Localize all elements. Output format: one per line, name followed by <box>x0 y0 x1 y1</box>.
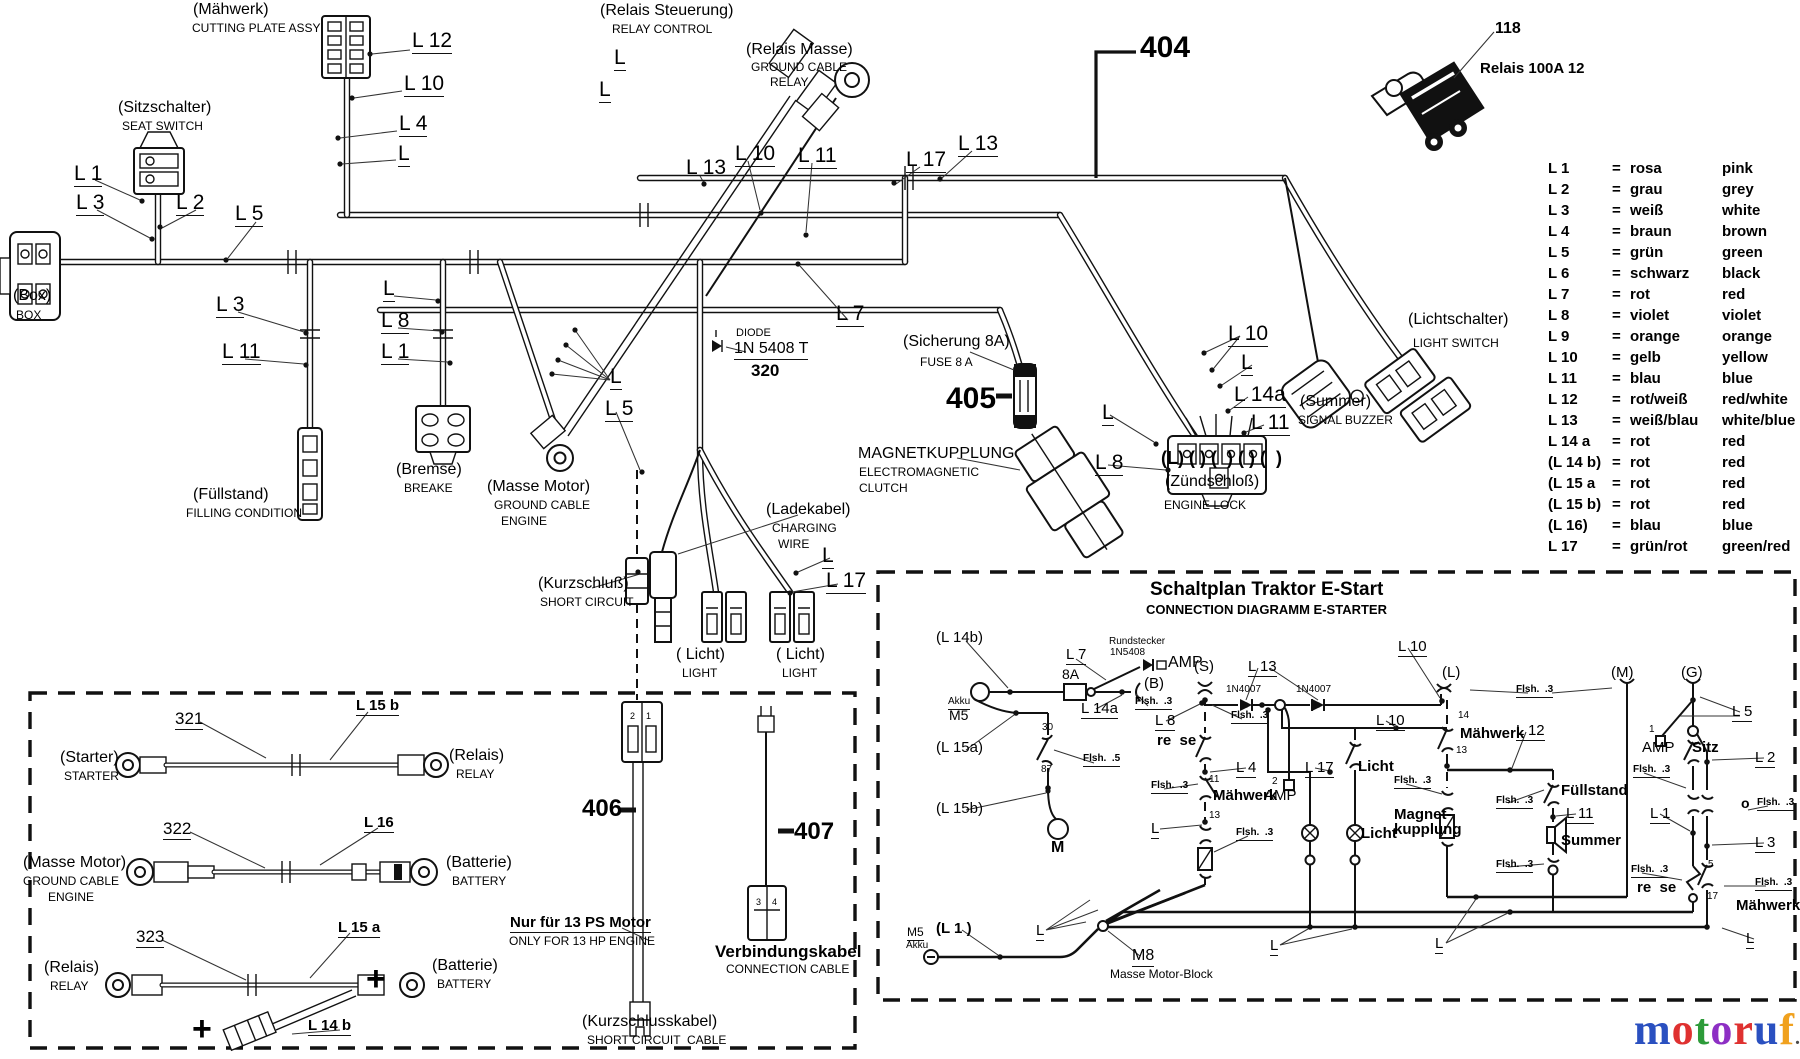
c-re-se-1: re se <box>1157 733 1196 749</box>
c-node-m: (M) <box>1611 665 1634 681</box>
pin-407-3: 3 <box>756 898 761 907</box>
maehwerk-label-en: CUTTING PLATE ASSY <box>192 22 320 35</box>
wire-l17: L 17 <box>906 149 946 173</box>
legend-code: (L 16) <box>1548 517 1612 534</box>
legend-row-8: L 8=violetviolet <box>1548 307 1795 328</box>
c-l-r2: L <box>1435 936 1443 954</box>
c-l2: L 2 <box>1755 750 1775 768</box>
c-1n5408: 1N5408 <box>1110 648 1145 659</box>
legend-de: weiß/blau <box>1630 412 1722 429</box>
legend-eq: = <box>1612 496 1630 513</box>
legend-row-9: L 9=orangeorange <box>1548 328 1795 349</box>
legend-de: rosa <box>1630 160 1722 177</box>
summer-label-en: SIGNAL BUZZER <box>1298 414 1393 427</box>
c-30: 30 <box>1042 723 1053 734</box>
harness-and-schematic-drawing <box>0 0 1800 1059</box>
wire-l-fan: L <box>610 366 622 390</box>
part-322: 322 <box>163 820 191 840</box>
legend-row-5: L 5=grüngreen <box>1548 244 1795 265</box>
legend-code: L 14 a <box>1548 433 1612 450</box>
legend-row-13: L 13=weiß/blauwhite/blue <box>1548 412 1795 433</box>
c-flsh-12: Flsh. .3 <box>1631 865 1668 878</box>
c-flsh-4: Flsh. .3 <box>1236 828 1273 841</box>
c-5: 5 <box>1708 860 1714 871</box>
c-m5-2: M5 <box>907 926 924 941</box>
legend-eq: = <box>1612 160 1630 177</box>
legend-code: L 3 <box>1548 202 1612 219</box>
legend-code: L 4 <box>1548 223 1612 240</box>
wire-l10-top: L 10 <box>404 73 444 97</box>
wire-l5-fan: L 5 <box>605 398 633 422</box>
pin-406-2: 2 <box>630 712 635 721</box>
c-b: (B) <box>1144 676 1164 692</box>
wire-l13-b: L 13 <box>958 133 998 157</box>
legend-en: red <box>1722 454 1795 471</box>
summer-label-de: (Summer) <box>1300 394 1371 411</box>
part-118-name: Relais 100A 12 <box>1480 61 1585 77</box>
plus-sign-1: + <box>192 1012 212 1048</box>
legend-code: (L 15 a <box>1548 475 1612 492</box>
legend-de: blau <box>1630 370 1722 387</box>
legend-row-15a: (L 15 a=rotred <box>1548 475 1795 496</box>
c-s: (S) <box>1194 659 1214 675</box>
legend-eq: = <box>1612 265 1630 282</box>
licht2-label-en: LIGHT <box>782 667 817 680</box>
c-13a: 13 <box>1209 811 1220 822</box>
legend-code: L 9 <box>1548 328 1612 345</box>
relais321-label-de: (Relais) <box>449 748 504 765</box>
c-licht-2: Licht <box>1361 826 1397 842</box>
c-flsh-1: Flsh. .3 <box>1135 697 1172 710</box>
legend-de: rot <box>1630 475 1722 492</box>
c-sitz: Sitz <box>1692 740 1719 756</box>
c-l15a: (L 15a) <box>936 740 983 756</box>
legend-code: L 6 <box>1548 265 1612 282</box>
c-l14b: (L 14b) <box>936 630 983 646</box>
wire-l4-top: L 4 <box>399 113 427 137</box>
legend-row-7: L 7=rotred <box>1548 286 1795 307</box>
legend-code: L 2 <box>1548 181 1612 198</box>
c-l12: L 12 <box>1516 723 1545 741</box>
legend-row-11: L 11=blaublue <box>1548 370 1795 391</box>
legend-en: red <box>1722 286 1795 303</box>
c-l3: L 3 <box>1755 835 1775 853</box>
c-motor-m: M <box>1051 840 1064 857</box>
c-licht-1: Licht <box>1358 759 1394 775</box>
c-l7: L 7 <box>1066 647 1086 665</box>
nur13ps-de: Nur für 13 PS Motor <box>510 915 651 933</box>
legend-code: L 5 <box>1548 244 1612 261</box>
c-l5: L 5 <box>1732 704 1752 722</box>
wire-l-zs: L <box>1241 352 1253 376</box>
c-13b: 13 <box>1456 746 1467 757</box>
relais-steuerung-label-en: RELAY CONTROL <box>612 23 712 36</box>
legend-code: L 7 <box>1548 286 1612 303</box>
masse-motor322-label-en1: GROUND CABLE <box>23 875 119 888</box>
masse-motor-label-de: (Masse Motor) <box>487 479 590 496</box>
legend-row-12: L 12=rot/weißred/white <box>1548 391 1795 412</box>
legend-de: schwarz <box>1630 265 1722 282</box>
legend-de: braun <box>1630 223 1722 240</box>
legend-en: brown <box>1722 223 1795 240</box>
sitzschalter-label-de: (Sitzschalter) <box>118 100 211 117</box>
wire-l8-zs: L 8 <box>1095 452 1123 476</box>
logo-letter: u <box>1754 1005 1779 1054</box>
c-flsh-6: Flsh. .3 <box>1516 685 1553 698</box>
ladekabel-label-de: (Ladekabel) <box>766 502 851 519</box>
fuse-8a-component <box>996 364 1036 428</box>
wire-l3-left: L 3 <box>76 192 104 216</box>
verbindungskabel-label-en: CONNECTION CABLE <box>726 963 849 976</box>
cable-321-starter <box>116 753 448 777</box>
logo-letter: r <box>1733 1005 1754 1054</box>
logo-letter: t <box>1695 1005 1711 1054</box>
part-404-bracket <box>1096 52 1136 178</box>
c-14: 14 <box>1458 711 1469 722</box>
legend-eq: = <box>1612 307 1630 324</box>
mower-deck-connector <box>322 16 370 78</box>
legend-en: white <box>1722 202 1795 219</box>
legend-code: L 1 <box>1548 160 1612 177</box>
legend-en: yellow <box>1722 349 1795 366</box>
motoruf-logo: motoruf.de <box>1634 1004 1800 1055</box>
licht1-label-en: LIGHT <box>682 667 717 680</box>
ladekabel-label-en2: WIRE <box>778 538 809 551</box>
nur13ps-en: ONLY FOR 13 HP ENGINE <box>509 935 655 948</box>
legend-row-17: L 17=grün/rotgreen/red <box>1548 538 1795 559</box>
batterie322-label-de: (Batterie) <box>446 855 512 872</box>
legend-eq: = <box>1612 433 1630 450</box>
legend-eq: = <box>1612 412 1630 429</box>
starter-label-en: STARTER <box>64 770 119 783</box>
legend-eq: = <box>1612 223 1630 240</box>
c-o: o <box>1741 796 1750 811</box>
engine-ground-ring-terminal <box>531 415 573 471</box>
c-1n4007-b: 1N4007 <box>1296 685 1331 696</box>
relais-masse-label-de: (Relais Masse) <box>746 42 853 59</box>
logo-letter: m <box>1634 1005 1672 1054</box>
diode-part: 1N 5408 T <box>734 341 808 360</box>
legend-code: (L 14 b) <box>1548 454 1612 471</box>
legend-de: rot <box>1630 286 1722 303</box>
c-87: 87 <box>1041 765 1052 776</box>
wire-l11-row: L 11 <box>798 145 837 169</box>
wire-l7: L 7 <box>836 303 864 327</box>
wire-l10-zs: L 10 <box>1228 323 1268 347</box>
batterie322-label-en: BATTERY <box>452 875 506 888</box>
legend-en: green <box>1722 244 1795 261</box>
legend-en: red <box>1722 496 1795 513</box>
fuellstand-label-en: FILLING CONDITION <box>186 507 302 520</box>
c-l17: L 17 <box>1305 760 1334 778</box>
legend-eq: = <box>1612 391 1630 408</box>
legend-eq: = <box>1612 517 1630 534</box>
legend-en: grey <box>1722 181 1795 198</box>
legend-eq: = <box>1612 454 1630 471</box>
box-label-en: BOX <box>16 309 41 322</box>
c-flsh-13: Flsh. .3 <box>1755 878 1792 891</box>
legend-code: L 8 <box>1548 307 1612 324</box>
kurzschlusskabel-label-en: SHORT CIRCUIT CABLE <box>587 1034 726 1047</box>
legend-de: grau <box>1630 181 1722 198</box>
logo-letter: f <box>1779 1005 1795 1054</box>
verbindungskabel-label-de: Verbindungskabel <box>715 943 861 961</box>
legend-de: grün <box>1630 244 1722 261</box>
sicherung-label-en: FUSE 8 A <box>920 356 973 369</box>
legend-en: white/blue <box>1722 412 1795 429</box>
cable-l14b: L 14 b <box>308 1018 351 1036</box>
legend-de: grün/rot <box>1630 538 1722 555</box>
c-l14a: L 14a <box>1081 701 1118 719</box>
seat-switch-connector <box>134 132 184 194</box>
c-summer: Summer <box>1561 833 1621 849</box>
wire-l1-left: L 1 <box>74 163 102 187</box>
legend-eq: = <box>1612 538 1630 555</box>
legend-en: pink <box>1722 160 1795 177</box>
legend-code: L 10 <box>1548 349 1612 366</box>
legend-eq: = <box>1612 370 1630 387</box>
relais-masse-label-en2: RELAY <box>770 76 808 89</box>
cable-l15b: L 15 b <box>356 698 399 716</box>
cable-407-connection <box>748 706 794 940</box>
c-l10-b: L 10 <box>1398 639 1427 657</box>
wire-color-legend: L 1=rosapinkL 2=graugreyL 3=weißwhiteL 4… <box>1548 160 1795 559</box>
cable-l16: L 16 <box>364 815 394 833</box>
masse-motor-label-en1: GROUND CABLE <box>494 499 590 512</box>
cable-406-short-circuit <box>620 702 662 1036</box>
wire-l11-left: L 11 <box>222 341 261 365</box>
masse-motor322-label-en2: ENGINE <box>48 891 94 904</box>
kurzschlusskabel-label-de: (Kurzschlusskabel) <box>582 1014 717 1031</box>
masse-motor322-label-de: (Masse Motor) <box>23 855 126 872</box>
logo-letter: o <box>1672 1005 1695 1054</box>
legend-row-14a: L 14 a=rotred <box>1548 433 1795 454</box>
legend-row-6: L 6=schwarzblack <box>1548 265 1795 286</box>
licht2-label-de: ( Licht) <box>776 647 825 664</box>
magnetkupplung-label-de: MAGNETKUPPLUNG <box>858 446 1014 463</box>
wire-l3-mid: L 3 <box>216 294 244 318</box>
c-amp-3: AMP <box>1642 740 1675 756</box>
legend-en: red <box>1722 475 1795 492</box>
part-321: 321 <box>175 710 203 730</box>
c-17: 17 <box>1707 892 1718 903</box>
legend-de: orange <box>1630 328 1722 345</box>
relais321-label-en: RELAY <box>456 768 494 781</box>
wire-l14a-zs: L 14a <box>1234 384 1286 408</box>
c-m5-1: M5 <box>949 708 968 723</box>
batterie323-label-en: BATTERY <box>437 978 491 991</box>
ladekabel-label-en1: CHARGING <box>772 522 837 535</box>
box-label-de: (Box) <box>13 288 51 305</box>
light-switch-connector <box>1364 340 1472 450</box>
part-118: 118 <box>1495 21 1521 38</box>
kurzschluss-label-en: SHORT CIRCUIT <box>540 596 634 609</box>
c-l-r3: L <box>1270 938 1278 956</box>
c-l-r1: L <box>1746 931 1754 949</box>
c-1n4007-a: 1N4007 <box>1226 685 1261 696</box>
legend-eq: = <box>1612 181 1630 198</box>
lichtschalter-label-en: LIGHT SWITCH <box>1413 337 1499 350</box>
legend-de: rot <box>1630 496 1722 513</box>
legend-en: orange <box>1722 328 1795 345</box>
legend-de: rot/weiß <box>1630 391 1722 408</box>
masse-motor-label-en2: ENGINE <box>501 515 547 528</box>
relais-masse-label-en1: GROUND CABLE <box>751 61 847 74</box>
wire-l2: L 2 <box>176 192 204 216</box>
legend-de: blau <box>1630 517 1722 534</box>
c-fuellstand: Füllstand <box>1561 783 1628 799</box>
magnetkupplung-label-en2: CLUTCH <box>859 482 908 495</box>
logo-suffix: .de <box>1795 1027 1800 1049</box>
relay-118-illustration <box>1372 62 1484 151</box>
pin-406-1: 1 <box>646 712 651 721</box>
legend-en: blue <box>1722 370 1795 387</box>
legend-en: blue <box>1722 517 1795 534</box>
starter-label-de: (Starter) <box>60 750 119 767</box>
c-flsh-11: Flsh. .3 <box>1757 798 1794 811</box>
legend-eq: = <box>1612 349 1630 366</box>
c-rundstecker: Rundstecker <box>1109 637 1165 648</box>
wire-l-rs1: L <box>614 47 626 71</box>
c-flsh-3: Flsh. .3 <box>1151 781 1188 794</box>
c-flsh-2: Flsh. .3 <box>1231 711 1268 724</box>
c-l10-a: L 10 <box>1376 713 1405 731</box>
legend-de: rot <box>1630 433 1722 450</box>
legend-row-14b: (L 14 b)=rotred <box>1548 454 1795 475</box>
bremse-label-en: BREAKE <box>404 482 453 495</box>
licht1-label-de: ( Licht) <box>676 647 725 664</box>
legend-eq: = <box>1612 475 1630 492</box>
part-406: 406 <box>582 796 622 821</box>
legend-eq: = <box>1612 244 1630 261</box>
legend-row-2: L 2=graugrey <box>1548 181 1795 202</box>
c-flsh-7: Flsh. .3 <box>1394 776 1431 789</box>
legend-row-1: L 1=rosapink <box>1548 160 1795 181</box>
wire-l-bremse: L <box>383 278 395 302</box>
diode-label: DIODE <box>736 328 771 340</box>
c-8a: 8A <box>1062 667 1079 682</box>
pin-407-4: 4 <box>772 898 777 907</box>
wire-l17-ladekabel: L 17 <box>826 570 866 594</box>
part-405: 405 <box>946 383 996 415</box>
legend-en: green/red <box>1722 538 1795 555</box>
legend-row-3: L 3=weißwhite <box>1548 202 1795 223</box>
wire-l11-zs: L 11 <box>1251 412 1290 436</box>
c-l1: L 1 <box>1650 806 1670 824</box>
c-maehwerk-2: Mähwerk <box>1460 726 1524 742</box>
fuellstand-label-de: (Füllstand) <box>193 487 269 504</box>
legend-en: red <box>1722 433 1795 450</box>
plus-sign-2: + <box>366 962 386 998</box>
c-maehwerk-3: Mähwerk <box>1736 898 1800 914</box>
c-node-l: (L) <box>1442 665 1460 681</box>
c-l15b: (L 15b) <box>936 801 983 817</box>
part-320: 320 <box>751 362 779 380</box>
c-akku-2: Akku <box>906 941 928 952</box>
wire-l-rs2: L <box>599 79 611 103</box>
kurzschluss-label-de: (Kurzschluß) <box>538 576 629 593</box>
legend-row-4: L 4=braunbrown <box>1548 223 1795 244</box>
c-amp-2: AMP <box>1264 788 1297 804</box>
c-1: 1 <box>1649 725 1655 736</box>
sicherung-label-de: (Sicherung 8A) <box>903 334 1010 351</box>
legend-eq: = <box>1612 202 1630 219</box>
legend-en: violet <box>1722 307 1795 324</box>
cable-322-ground <box>127 859 437 885</box>
schematic-wires <box>924 659 1713 964</box>
wire-l8-bremse: L 8 <box>381 310 409 334</box>
lichtschalter-label-de: (Lichtschalter) <box>1408 312 1508 329</box>
maehwerk-label-de: (Mähwerk) <box>193 2 269 19</box>
legend-en: red/white <box>1722 391 1795 408</box>
schematic-dashed-box <box>878 572 1795 1000</box>
magnetkupplung-label-en1: ELECTROMAGNETIC <box>859 466 979 479</box>
charging-cable-plug <box>650 552 676 642</box>
c-re-se-2: re se <box>1637 880 1676 896</box>
wire-l10-row: L 10 <box>735 143 775 167</box>
legend-de: gelb <box>1630 349 1722 366</box>
wire-l5: L 5 <box>235 203 263 227</box>
diode-symbol <box>712 330 722 352</box>
c-11: 11 <box>1209 775 1219 786</box>
logo-letter: o <box>1710 1005 1733 1054</box>
cable-l15a: L 15 a <box>338 920 380 938</box>
legend-code: L 17 <box>1548 538 1612 555</box>
sitzschalter-label-en: SEAT SWITCH <box>122 120 203 133</box>
part-404: 404 <box>1140 32 1190 64</box>
light-spade-connectors <box>702 592 814 642</box>
c-l1-bottom: (L 1 ) <box>936 921 972 937</box>
brake-connector <box>416 406 470 464</box>
c-l11: L 11 <box>1566 806 1594 824</box>
c-l-mid: L <box>1151 821 1159 839</box>
c-magnet-2: kupplung <box>1394 822 1462 838</box>
legend-de: weiß <box>1630 202 1722 219</box>
relais323-label-de: (Relais) <box>44 960 99 977</box>
legend-eq: = <box>1612 328 1630 345</box>
c-flsh-9: Flsh. .3 <box>1496 860 1533 873</box>
legend-code: (L 15 b) <box>1548 496 1612 513</box>
bremse-label-de: (Bremse) <box>396 462 462 479</box>
c-l4: L 4 <box>1236 760 1256 778</box>
legend-code: L 12 <box>1548 391 1612 408</box>
c-masse-motor-block: Masse Motor-Block <box>1110 968 1213 981</box>
wire-l-top: L <box>398 143 410 167</box>
zuendschloss-label-de: (Zündschloß) <box>1165 474 1259 491</box>
c-m8: M8 <box>1132 948 1154 967</box>
legend-eq: = <box>1612 286 1630 303</box>
zuendschloss-terminals: (L) ( ) ( ) ( ) ( ) <box>1161 449 1282 468</box>
circuit-subtitle: CONNECTION DIAGRAMM E-STARTER <box>1146 603 1387 617</box>
box-connector <box>0 232 60 320</box>
batterie323-label-de: (Batterie) <box>432 958 498 975</box>
c-flsh-10: Flsh. .3 <box>1633 765 1670 778</box>
wire-l13-a: L 13 <box>686 157 726 181</box>
circuit-title: Schaltplan Traktor E-Start <box>1150 580 1383 600</box>
legend-de: rot <box>1630 454 1722 471</box>
c-flsh-8: Flsh. .3 <box>1496 796 1533 809</box>
relais-steuerung-label-de: (Relais Steuerung) <box>600 3 733 20</box>
c-node-g: (G) <box>1681 665 1703 681</box>
wire-l-zs-left: L <box>1102 402 1114 426</box>
legend-de: violet <box>1630 307 1722 324</box>
zuendschloss-label-en: ENGINE LOCK <box>1164 499 1246 512</box>
legend-code: L 13 <box>1548 412 1612 429</box>
legend-row-15b: (L 15 b)=rotred <box>1548 496 1795 517</box>
c-l-hub: L <box>1036 923 1044 941</box>
legend-code: L 11 <box>1548 370 1612 387</box>
c-l8: L 8 <box>1155 713 1175 731</box>
